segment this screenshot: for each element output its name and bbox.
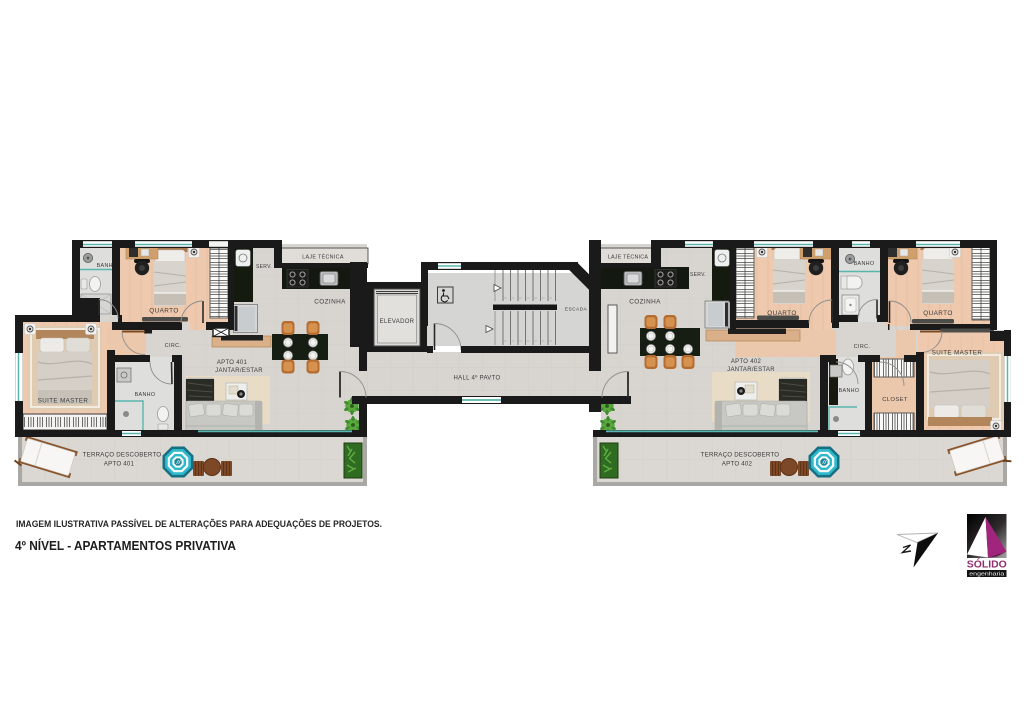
svg-text:TERRAÇO DESCOBERTO: TERRAÇO DESCOBERTO bbox=[83, 452, 162, 459]
svg-text:LAJE TÉCNICA: LAJE TÉCNICA bbox=[302, 254, 344, 261]
svg-text:QUARTO: QUARTO bbox=[149, 308, 179, 315]
svg-text:COZINHA: COZINHA bbox=[314, 299, 346, 306]
svg-text:QUARTO: QUARTO bbox=[923, 310, 953, 317]
svg-text:APTO 401: APTO 401 bbox=[217, 360, 248, 366]
svg-text:SUITE MASTER: SUITE MASTER bbox=[38, 398, 89, 405]
svg-text:TERRAÇO DESCOBERTO: TERRAÇO DESCOBERTO bbox=[701, 452, 780, 459]
svg-text:COZINHA: COZINHA bbox=[629, 299, 661, 306]
svg-text:CIRC.: CIRC. bbox=[165, 343, 182, 349]
svg-text:QUARTO: QUARTO bbox=[767, 310, 797, 317]
svg-text:IMAGEM ILUSTRATIVA PASSÍVEL DE: IMAGEM ILUSTRATIVA PASSÍVEL DE ALTERAÇÕE… bbox=[16, 519, 382, 529]
svg-text:JANTAR/ESTAR: JANTAR/ESTAR bbox=[215, 368, 263, 374]
svg-text:SERV.: SERV. bbox=[690, 272, 706, 278]
svg-text:CIRC.: CIRC. bbox=[854, 344, 871, 350]
svg-text:4º NÍVEL - APARTAMENTOS PRIVAT: 4º NÍVEL - APARTAMENTOS PRIVATIVA bbox=[15, 538, 236, 553]
svg-text:engenharia: engenharia bbox=[969, 572, 1005, 578]
svg-text:BANHO: BANHO bbox=[839, 388, 860, 394]
svg-text:APTO 402: APTO 402 bbox=[731, 359, 762, 365]
svg-text:BANHO: BANHO bbox=[135, 392, 156, 398]
svg-text:SUITE MASTER: SUITE MASTER bbox=[932, 350, 983, 357]
svg-text:BANHO: BANHO bbox=[854, 261, 875, 267]
svg-text:APTO 402: APTO 402 bbox=[722, 461, 753, 468]
svg-text:APTO 401: APTO 401 bbox=[104, 461, 135, 468]
svg-text:HALL 4º PAVTO: HALL 4º PAVTO bbox=[454, 375, 501, 382]
svg-text:LAJE TÉCNICA: LAJE TÉCNICA bbox=[608, 254, 649, 261]
svg-text:CLOSET: CLOSET bbox=[882, 397, 908, 403]
svg-text:SÓLIDO: SÓLIDO bbox=[967, 558, 1007, 571]
svg-text:ESCADA: ESCADA bbox=[565, 307, 588, 313]
svg-text:ELEVADOR: ELEVADOR bbox=[380, 319, 415, 325]
svg-text:SERV.: SERV. bbox=[256, 264, 272, 270]
